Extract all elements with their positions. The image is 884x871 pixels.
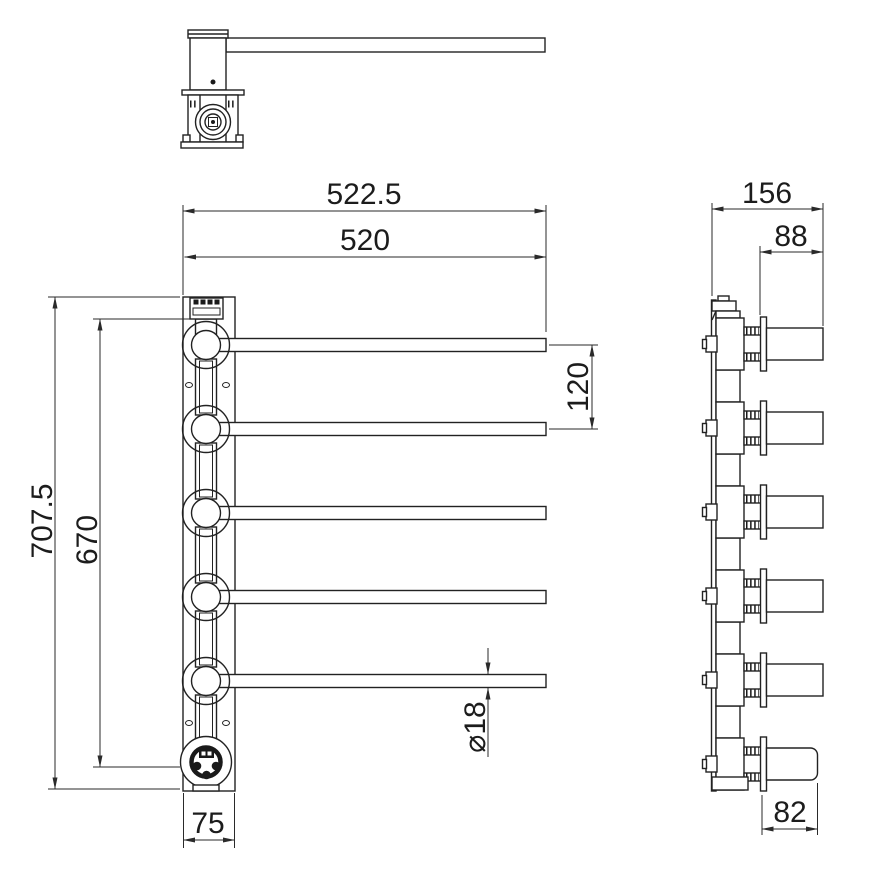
- towel-bar: [206, 507, 546, 520]
- dim-bar-diameter-label: ⌀18: [459, 701, 492, 752]
- bearing-cam: [196, 105, 231, 140]
- towel-bar: [206, 339, 546, 352]
- mounting-plate: [183, 297, 235, 791]
- towel-bar: [206, 675, 546, 688]
- connector-pin: [193, 762, 202, 771]
- dim-arm-projection-label: 88: [774, 220, 807, 253]
- top-view-flange: [182, 90, 244, 95]
- dim-arm-spacing: 120: [549, 345, 598, 429]
- top-view-post: [190, 38, 226, 90]
- dim-plate-width-label: 75: [191, 807, 224, 840]
- towel-bar: [206, 423, 546, 436]
- side-arm-unit: [703, 401, 824, 455]
- towel-bars-and-hubs: [183, 322, 547, 705]
- dim-side-overall-depth-label: 156: [742, 177, 792, 210]
- set-screw-dot: [211, 80, 216, 85]
- dim-arm-projection: 88: [760, 220, 823, 315]
- top-view-arm: [226, 38, 545, 52]
- dim-mounting-height-label: 670: [71, 515, 104, 565]
- flange-disc: [761, 737, 767, 791]
- side-arm-rounded: [767, 748, 818, 780]
- dim-overall-height-label: 707.5: [26, 483, 59, 558]
- dim-bottom-arm-projection-label: 82: [773, 796, 806, 829]
- side-arm: [767, 328, 824, 360]
- technical-drawing-page: 522.5 520 707.5 670 120 ⌀18 75: [0, 0, 884, 871]
- top-view: [181, 30, 545, 148]
- side-arm: [767, 580, 824, 612]
- dim-arm-spacing-label: 120: [562, 362, 595, 412]
- dim-rail-length-label: 520: [340, 224, 390, 257]
- side-arm: [767, 412, 824, 444]
- dim-rail-length: 520: [185, 224, 547, 257]
- side-arm-unit: [703, 569, 824, 623]
- side-view: [703, 296, 824, 791]
- flange-disc: [761, 401, 767, 455]
- towel-bar: [206, 591, 546, 604]
- connector-pin: [202, 771, 211, 780]
- connector-pin: [212, 762, 221, 771]
- dim-plate-width: 75: [184, 793, 235, 848]
- cable-tab: [193, 785, 219, 791]
- dim-overall-width-label: 522.5: [326, 178, 401, 211]
- flange-disc: [761, 317, 767, 371]
- dim-mounting-height: 670: [71, 319, 190, 767]
- side-bottom-foot: [712, 777, 748, 790]
- side-arm-unit: [703, 485, 824, 539]
- flange-disc: [761, 653, 767, 707]
- technical-drawing-canvas: 522.5 520 707.5 670 120 ⌀18 75: [0, 0, 884, 871]
- side-arm: [767, 496, 824, 528]
- side-arm-unit: [703, 317, 824, 371]
- side-arm-unit: [703, 653, 824, 707]
- flange-disc: [761, 485, 767, 539]
- top-view-bracket: [181, 95, 243, 148]
- top-bracket: [190, 298, 223, 319]
- dim-bar-diameter: ⌀18: [459, 648, 492, 757]
- dim-bottom-arm-projection: 82: [762, 783, 818, 835]
- side-arm: [767, 664, 824, 696]
- flange-disc: [761, 569, 767, 623]
